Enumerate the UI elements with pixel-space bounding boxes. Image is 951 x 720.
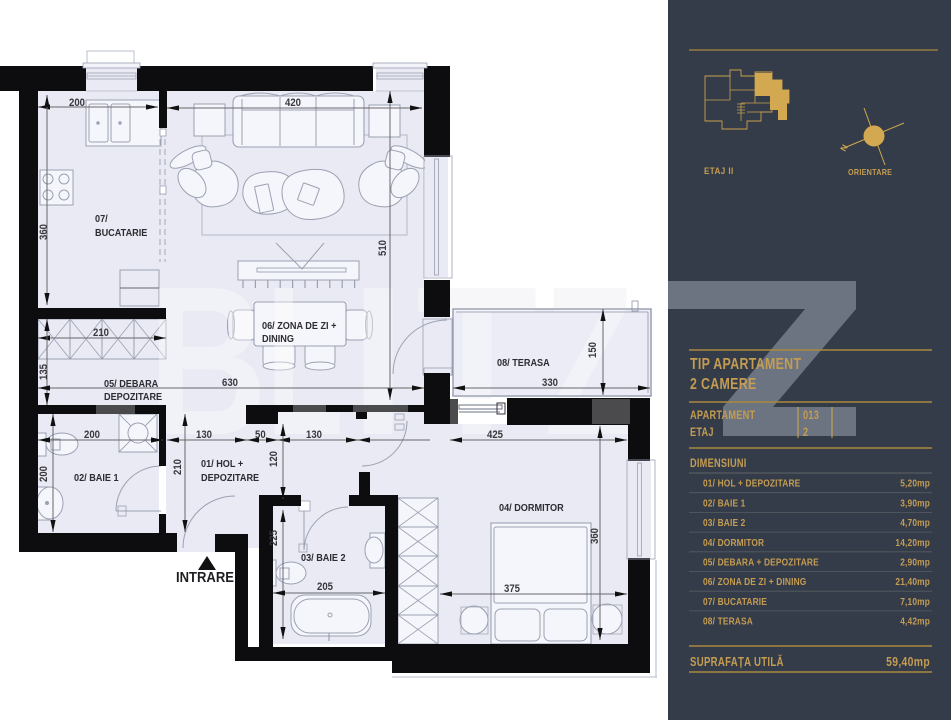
svg-text:03/ BAIE 2: 03/ BAIE 2 — [301, 552, 346, 564]
svg-text:06/ ZONA DE ZI + DINING: 06/ ZONA DE ZI + DINING — [703, 576, 806, 587]
svg-text:4,70mp: 4,70mp — [900, 517, 930, 528]
svg-text:130: 130 — [306, 429, 322, 441]
svg-text:SUPRAFAȚA UTILĂ: SUPRAFAȚA UTILĂ — [690, 655, 784, 670]
svg-text:510: 510 — [377, 240, 389, 256]
svg-text:3,90mp: 3,90mp — [900, 498, 930, 509]
svg-text:05/ DEBARA: 05/ DEBARA — [104, 378, 158, 390]
svg-text:59,40mp: 59,40mp — [886, 655, 930, 669]
svg-text:630: 630 — [222, 377, 238, 389]
svg-text:05/ DEBARA + DEPOZITARE: 05/ DEBARA + DEPOZITARE — [703, 557, 819, 568]
svg-text:120: 120 — [268, 451, 280, 467]
svg-text:205: 205 — [317, 581, 333, 593]
svg-text:200: 200 — [38, 466, 50, 482]
svg-text:225: 225 — [268, 530, 280, 546]
svg-text:425: 425 — [487, 429, 503, 441]
svg-text:50: 50 — [255, 429, 266, 441]
svg-text:200: 200 — [69, 97, 85, 109]
svg-text:420: 420 — [285, 97, 301, 109]
svg-text:Z: Z — [544, 242, 633, 479]
svg-text:BUCATARIE: BUCATARIE — [95, 227, 148, 239]
svg-text:DIMENSIUNI: DIMENSIUNI — [690, 458, 747, 470]
svg-text:360: 360 — [38, 224, 50, 240]
svg-text:INTRARE: INTRARE — [176, 569, 234, 585]
svg-text:ORIENTARE: ORIENTARE — [848, 167, 892, 177]
svg-text:L: L — [266, 244, 344, 480]
svg-text:2,90mp: 2,90mp — [900, 557, 930, 568]
svg-text:210: 210 — [172, 459, 184, 475]
svg-text:TIP APARTAMENT: TIP APARTAMENT — [690, 355, 801, 373]
svg-text:04/ DORMITOR: 04/ DORMITOR — [703, 537, 764, 548]
svg-text:DEPOZITARE: DEPOZITARE — [104, 391, 163, 403]
svg-text:7,10mp: 7,10mp — [900, 596, 930, 607]
svg-text:360: 360 — [589, 528, 601, 544]
svg-text:21,40mp: 21,40mp — [895, 576, 930, 587]
svg-text:4,42mp: 4,42mp — [900, 616, 930, 627]
svg-text:02/ BAIE 1: 02/ BAIE 1 — [74, 472, 119, 484]
svg-text:150: 150 — [587, 342, 599, 358]
svg-text:08/ TERASA: 08/ TERASA — [703, 616, 753, 627]
svg-text:06/ ZONA DE ZI +: 06/ ZONA DE ZI + — [262, 320, 337, 332]
svg-text:013: 013 — [803, 410, 819, 422]
svg-text:07/ BUCATARIE: 07/ BUCATARIE — [703, 596, 767, 607]
svg-text:200: 200 — [84, 429, 100, 441]
svg-text:02/ BAIE 1: 02/ BAIE 1 — [703, 498, 745, 509]
svg-text:135: 135 — [38, 364, 50, 380]
svg-text:01/ HOL +: 01/ HOL + — [201, 458, 243, 470]
svg-text:330: 330 — [542, 377, 558, 389]
svg-text:04/ DORMITOR: 04/ DORMITOR — [499, 502, 564, 514]
svg-text:07/: 07/ — [95, 213, 108, 225]
svg-text:14,20mp: 14,20mp — [895, 537, 930, 548]
svg-text:I: I — [350, 242, 406, 479]
svg-text:375: 375 — [504, 583, 520, 595]
svg-text:ETAJ: ETAJ — [690, 427, 714, 439]
svg-text:130: 130 — [196, 429, 212, 441]
svg-text:2 CAMERE: 2 CAMERE — [690, 375, 757, 393]
svg-text:ETAJ II: ETAJ II — [704, 165, 734, 176]
svg-text:01/ HOL + DEPOZITARE: 01/ HOL + DEPOZITARE — [703, 478, 800, 489]
svg-text:DEPOZITARE: DEPOZITARE — [201, 472, 260, 484]
svg-text:210: 210 — [93, 327, 109, 339]
svg-text:DINING: DINING — [262, 333, 294, 345]
svg-text:5,20mp: 5,20mp — [900, 478, 930, 489]
svg-text:APARTAMENT: APARTAMENT — [690, 410, 756, 422]
svg-text:08/ TERASA: 08/ TERASA — [497, 357, 550, 369]
svg-text:2: 2 — [803, 427, 808, 439]
svg-text:03/ BAIE 2: 03/ BAIE 2 — [703, 517, 745, 528]
